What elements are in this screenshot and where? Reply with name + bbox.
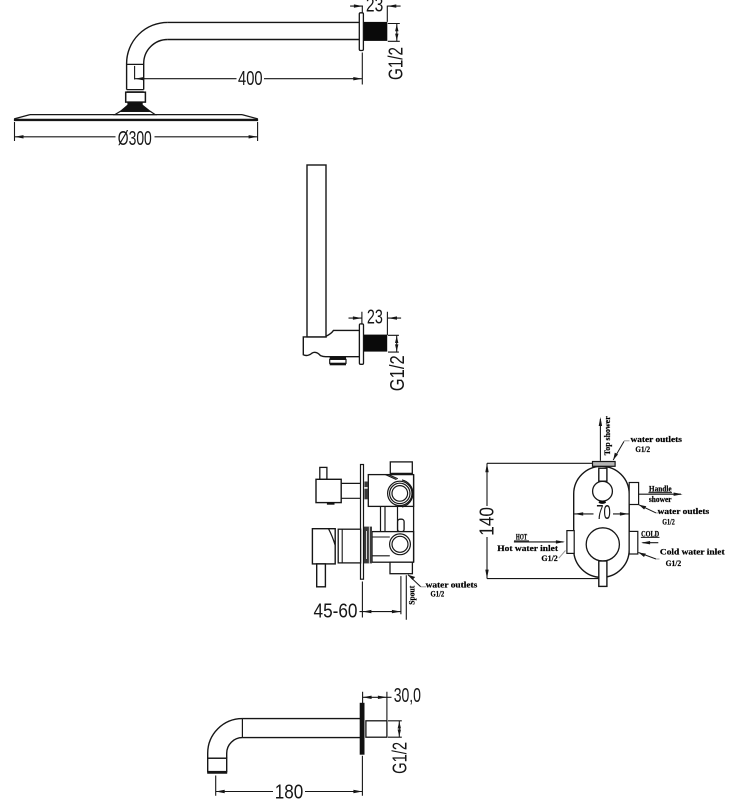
svg-text:G1/2: G1/2 (386, 355, 409, 391)
svg-text:Spout: Spout (408, 585, 417, 604)
svg-text:Cold water inlet: Cold water inlet (660, 547, 725, 556)
svg-text:G1/2: G1/2 (541, 554, 557, 563)
svg-text:G1/2: G1/2 (431, 590, 445, 599)
svg-text:G1/2: G1/2 (666, 559, 682, 568)
svg-text:180: 180 (275, 781, 304, 800)
svg-text:G1/2: G1/2 (384, 47, 407, 80)
svg-text:23: 23 (366, 0, 383, 17)
svg-text:30,0: 30,0 (394, 684, 421, 707)
svg-text:45-60: 45-60 (314, 599, 358, 622)
svg-text:23: 23 (367, 306, 383, 329)
svg-text:G1/2: G1/2 (635, 445, 650, 454)
svg-text:Hot water inlet: Hot water inlet (497, 544, 558, 553)
svg-text:water outlets: water outlets (426, 580, 478, 589)
svg-text:140: 140 (475, 507, 498, 536)
svg-text:G1/2: G1/2 (662, 517, 675, 526)
svg-text:G1/2: G1/2 (389, 742, 412, 774)
svg-text:water outlets: water outlets (631, 435, 682, 444)
svg-text:Ø300: Ø300 (118, 127, 152, 150)
svg-text:70: 70 (596, 501, 611, 524)
svg-text:HOT: HOT (516, 533, 528, 542)
svg-text:shower: shower (649, 495, 672, 504)
svg-text:400: 400 (238, 67, 263, 90)
svg-text:Top shower: Top shower (603, 416, 612, 455)
svg-text:water outlets: water outlets (658, 507, 710, 516)
